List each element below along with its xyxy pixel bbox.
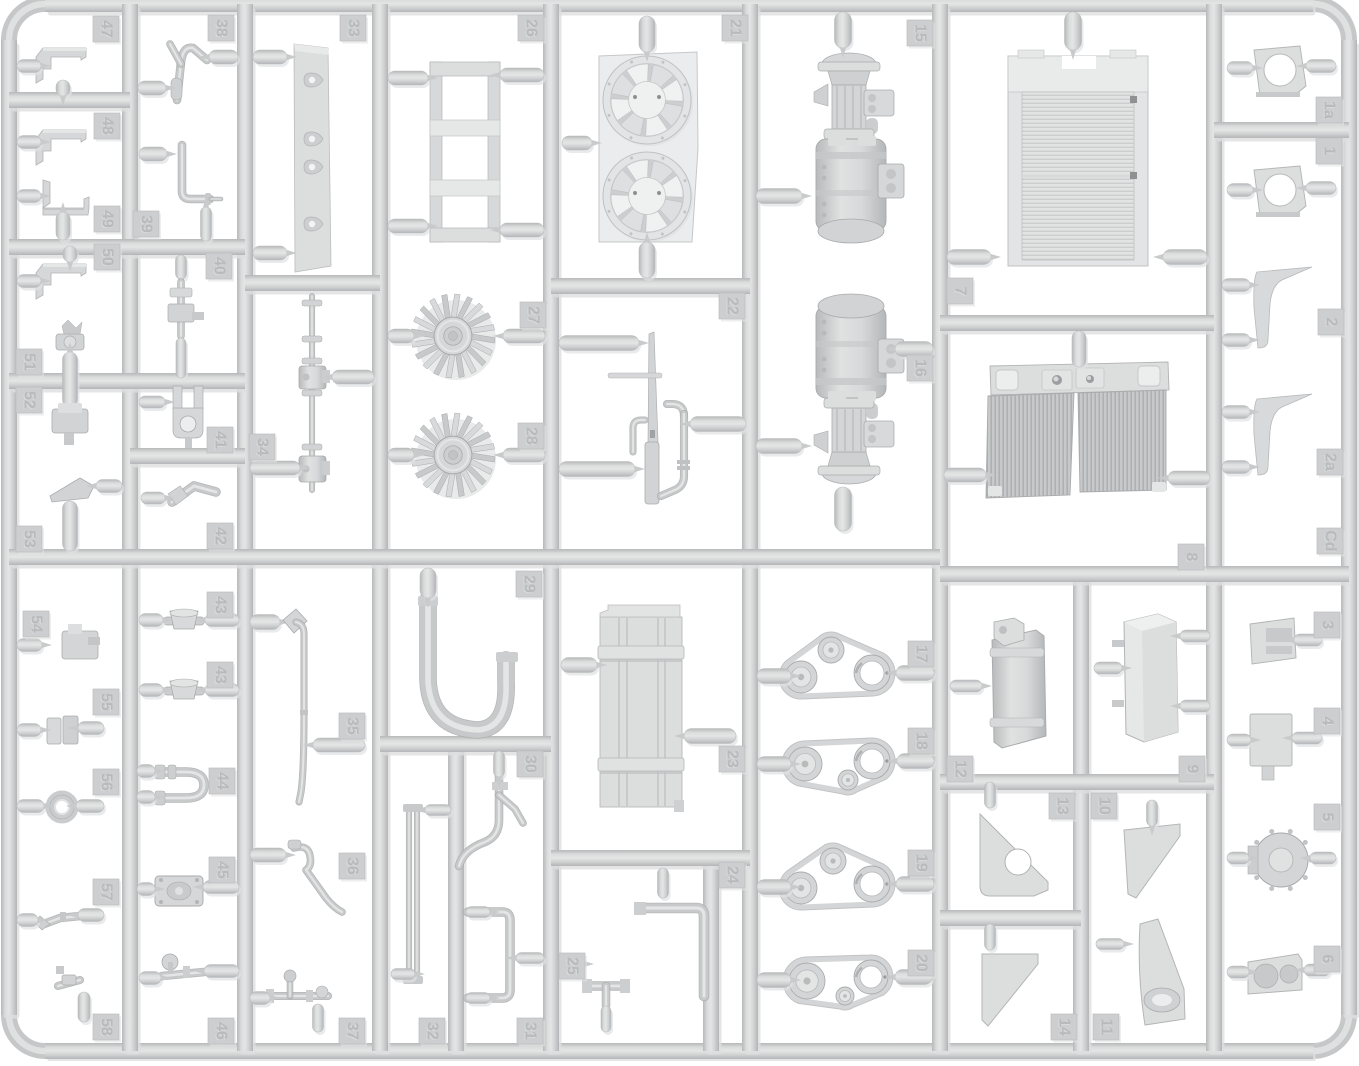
svg-text:57: 57 [98, 883, 115, 901]
svg-text:18: 18 [913, 732, 930, 750]
svg-text:32: 32 [424, 1022, 441, 1040]
svg-text:52: 52 [21, 391, 38, 409]
svg-text:2a: 2a [1322, 453, 1339, 471]
svg-text:47: 47 [98, 20, 115, 38]
svg-text:51: 51 [21, 353, 38, 371]
svg-text:28: 28 [523, 427, 540, 445]
svg-text:23: 23 [724, 750, 741, 768]
svg-text:13: 13 [1054, 797, 1071, 815]
svg-text:44: 44 [214, 772, 231, 790]
svg-text:15: 15 [912, 24, 929, 42]
svg-text:41: 41 [212, 431, 229, 449]
svg-text:53: 53 [21, 530, 38, 548]
svg-text:31: 31 [522, 1022, 539, 1040]
svg-text:33: 33 [345, 19, 362, 37]
svg-text:22: 22 [724, 297, 741, 315]
svg-text:16: 16 [912, 359, 929, 377]
svg-text:19: 19 [913, 854, 930, 872]
svg-text:Cd: Cd [1322, 530, 1339, 551]
svg-text:34: 34 [254, 438, 271, 456]
svg-text:58: 58 [98, 1018, 115, 1036]
svg-text:45: 45 [214, 861, 231, 879]
svg-text:24: 24 [724, 866, 741, 884]
svg-text:42: 42 [212, 527, 229, 545]
svg-text:4: 4 [1319, 717, 1336, 726]
svg-text:1a: 1a [1321, 101, 1338, 119]
svg-text:37: 37 [344, 1022, 361, 1040]
svg-text:49: 49 [99, 210, 116, 228]
svg-text:21: 21 [727, 19, 744, 37]
svg-text:38: 38 [213, 19, 230, 37]
svg-text:1: 1 [1321, 147, 1338, 156]
svg-text:35: 35 [344, 717, 361, 735]
svg-text:40: 40 [211, 257, 228, 275]
svg-text:6: 6 [1319, 955, 1336, 964]
svg-text:48: 48 [99, 117, 116, 135]
svg-text:56: 56 [98, 773, 115, 791]
svg-text:54: 54 [28, 615, 45, 633]
svg-text:55: 55 [98, 693, 115, 711]
svg-text:11: 11 [1098, 1019, 1115, 1036]
svg-text:2: 2 [1323, 318, 1340, 327]
svg-text:43: 43 [212, 596, 229, 614]
svg-text:50: 50 [99, 248, 116, 266]
svg-text:29: 29 [521, 575, 538, 593]
svg-text:5: 5 [1319, 813, 1336, 822]
svg-text:8: 8 [1183, 553, 1200, 562]
svg-text:17: 17 [913, 645, 930, 663]
svg-text:14: 14 [1056, 1018, 1073, 1036]
svg-text:39: 39 [138, 215, 155, 233]
svg-text:30: 30 [522, 755, 539, 773]
svg-text:10: 10 [1096, 797, 1113, 815]
svg-text:27: 27 [525, 306, 542, 324]
svg-text:12: 12 [952, 760, 969, 778]
svg-text:26: 26 [523, 19, 540, 37]
svg-text:9: 9 [1184, 765, 1201, 774]
svg-text:20: 20 [913, 954, 930, 972]
svg-text:36: 36 [344, 857, 361, 875]
svg-text:43: 43 [212, 666, 229, 684]
svg-text:25: 25 [564, 957, 581, 975]
svg-text:46: 46 [213, 1022, 230, 1040]
svg-text:7: 7 [952, 287, 969, 296]
svg-text:3: 3 [1319, 621, 1336, 630]
